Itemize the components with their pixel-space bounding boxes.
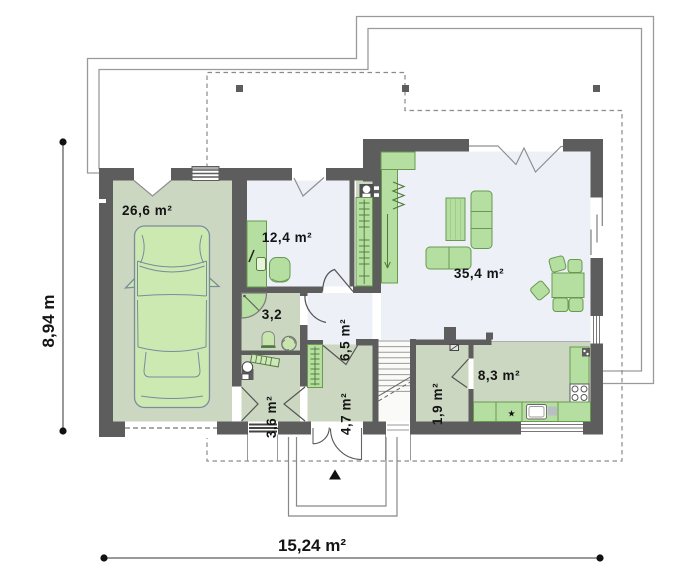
svg-text:★: ★ — [507, 409, 515, 419]
svg-text:1,9 m²: 1,9 m² — [430, 383, 445, 425]
svg-text:12,4 m²: 12,4 m² — [262, 230, 312, 245]
svg-text:35,4 m²: 35,4 m² — [454, 266, 504, 281]
svg-text:8,94 m: 8,94 m — [39, 295, 58, 348]
svg-text:26,6 m²: 26,6 m² — [122, 203, 172, 218]
svg-text:6,5 m²: 6,5 m² — [338, 319, 353, 361]
svg-text:4,7 m²: 4,7 m² — [339, 393, 354, 435]
svg-text:3,6 m²: 3,6 m² — [264, 396, 279, 438]
svg-text:15,24 m²: 15,24 m² — [278, 536, 346, 555]
svg-text:3,2: 3,2 — [262, 307, 282, 322]
svg-text:8,3 m²: 8,3 m² — [478, 368, 520, 383]
